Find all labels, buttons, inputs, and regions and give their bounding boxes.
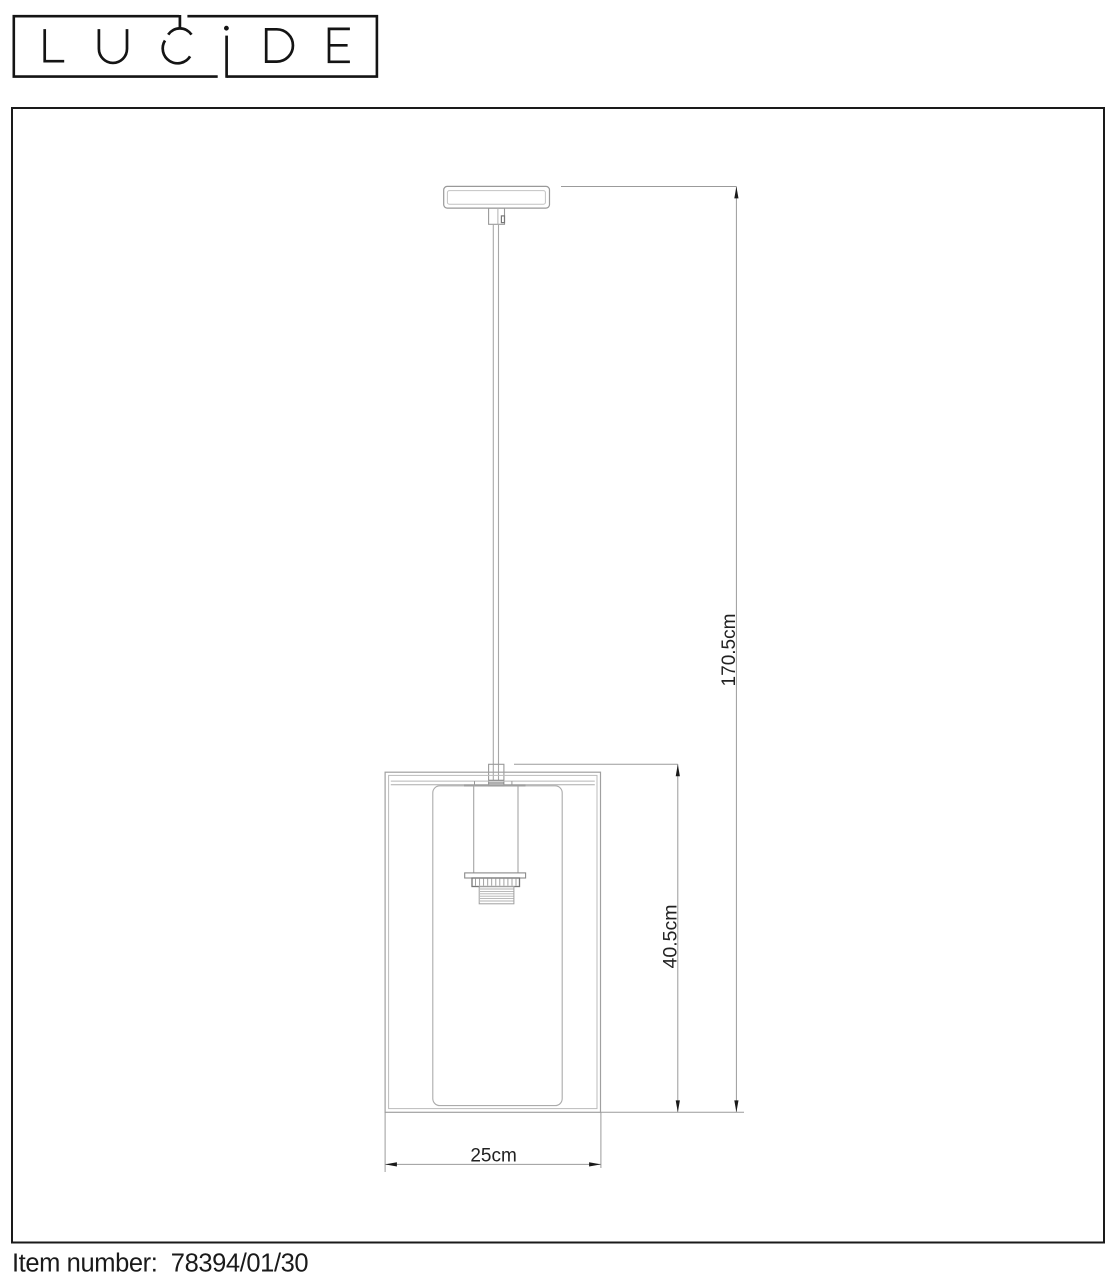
svg-text:170.5cm: 170.5cm (719, 614, 740, 687)
svg-text:Item number: 78394/01/30: Item number: 78394/01/30 (12, 1250, 308, 1278)
svg-text:40.5cm: 40.5cm (660, 905, 682, 969)
svg-text:25cm: 25cm (470, 1145, 516, 1166)
